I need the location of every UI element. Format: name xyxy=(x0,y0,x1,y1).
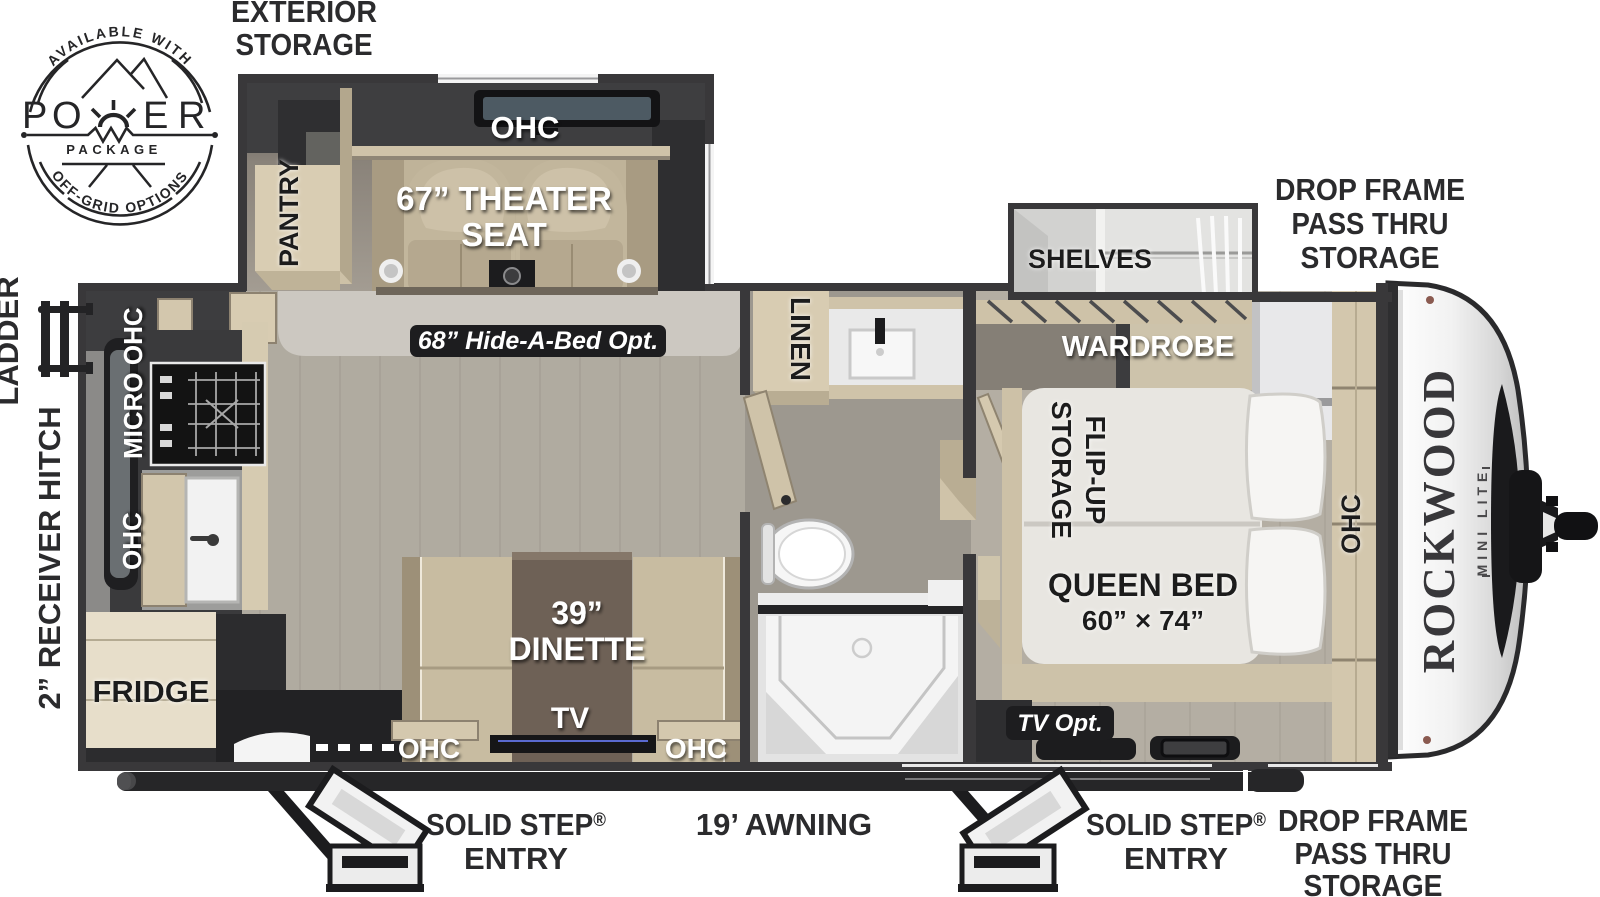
svg-text:67” THEATER: 67” THEATER xyxy=(396,180,612,217)
svg-text:QUEEN BED: QUEEN BED xyxy=(1048,567,1238,603)
svg-text:DROP FRAME: DROP FRAME xyxy=(1278,803,1468,838)
svg-text:R: R xyxy=(178,95,205,137)
svg-text:PASS THRU: PASS THRU xyxy=(1295,836,1452,871)
svg-text:OHC: OHC xyxy=(665,733,727,764)
svg-text:OHC: OHC xyxy=(398,733,460,764)
svg-text:PANTRY: PANTRY xyxy=(274,159,304,267)
svg-text:19’ AWNING: 19’ AWNING xyxy=(696,807,872,842)
svg-text:SOLID STEP®: SOLID STEP® xyxy=(1086,807,1266,842)
svg-text:PASS THRU: PASS THRU xyxy=(1292,206,1449,241)
svg-text:DROP FRAME: DROP FRAME xyxy=(1275,172,1465,207)
svg-text:ENTRY: ENTRY xyxy=(464,841,568,876)
svg-text:39”: 39” xyxy=(551,595,603,631)
svg-text:TV Opt.: TV Opt. xyxy=(1017,710,1102,737)
svg-text:EXTERIOR: EXTERIOR xyxy=(231,0,377,29)
svg-text:SEAT: SEAT xyxy=(461,216,547,253)
svg-text:60” × 74”: 60” × 74” xyxy=(1082,605,1204,636)
svg-text:FLIP-UP: FLIP-UP xyxy=(1080,416,1111,525)
svg-text:2” RECEIVER HITCH: 2” RECEIVER HITCH xyxy=(32,406,67,709)
svg-text:OHC: OHC xyxy=(117,512,147,570)
svg-text:68” Hide-A-Bed Opt.: 68” Hide-A-Bed Opt. xyxy=(418,327,658,355)
svg-text:LADDER: LADDER xyxy=(0,276,25,405)
svg-text:STORAGE: STORAGE xyxy=(1301,240,1440,275)
svg-text:P: P xyxy=(22,95,47,137)
svg-text:LINEN: LINEN xyxy=(785,297,816,381)
svg-text:ENTRY: ENTRY xyxy=(1124,841,1228,876)
svg-text:ROCKWOOD: ROCKWOOD xyxy=(1414,367,1464,674)
svg-text:STORAGE: STORAGE xyxy=(236,27,373,62)
svg-text:STORAGE: STORAGE xyxy=(1304,868,1443,897)
svg-text:MICRO OHC: MICRO OHC xyxy=(118,307,148,459)
svg-text:TV: TV xyxy=(551,702,589,735)
svg-text:OHC: OHC xyxy=(1336,494,1366,554)
svg-text:E: E xyxy=(143,95,168,137)
svg-text:PACKAGE: PACKAGE xyxy=(66,142,162,157)
svg-text:O: O xyxy=(52,95,82,137)
svg-text:STORAGE: STORAGE xyxy=(1046,401,1077,539)
svg-text:FRIDGE: FRIDGE xyxy=(92,674,209,709)
svg-text:WARDROBE: WARDROBE xyxy=(1062,331,1234,363)
svg-text:DINETTE: DINETTE xyxy=(509,631,646,667)
svg-text:SHELVES: SHELVES xyxy=(1028,244,1152,274)
svg-text:MINI LITE: MINI LITE xyxy=(1474,468,1490,577)
svg-text:OHC: OHC xyxy=(491,110,560,145)
svg-text:SOLID STEP®: SOLID STEP® xyxy=(426,807,606,842)
